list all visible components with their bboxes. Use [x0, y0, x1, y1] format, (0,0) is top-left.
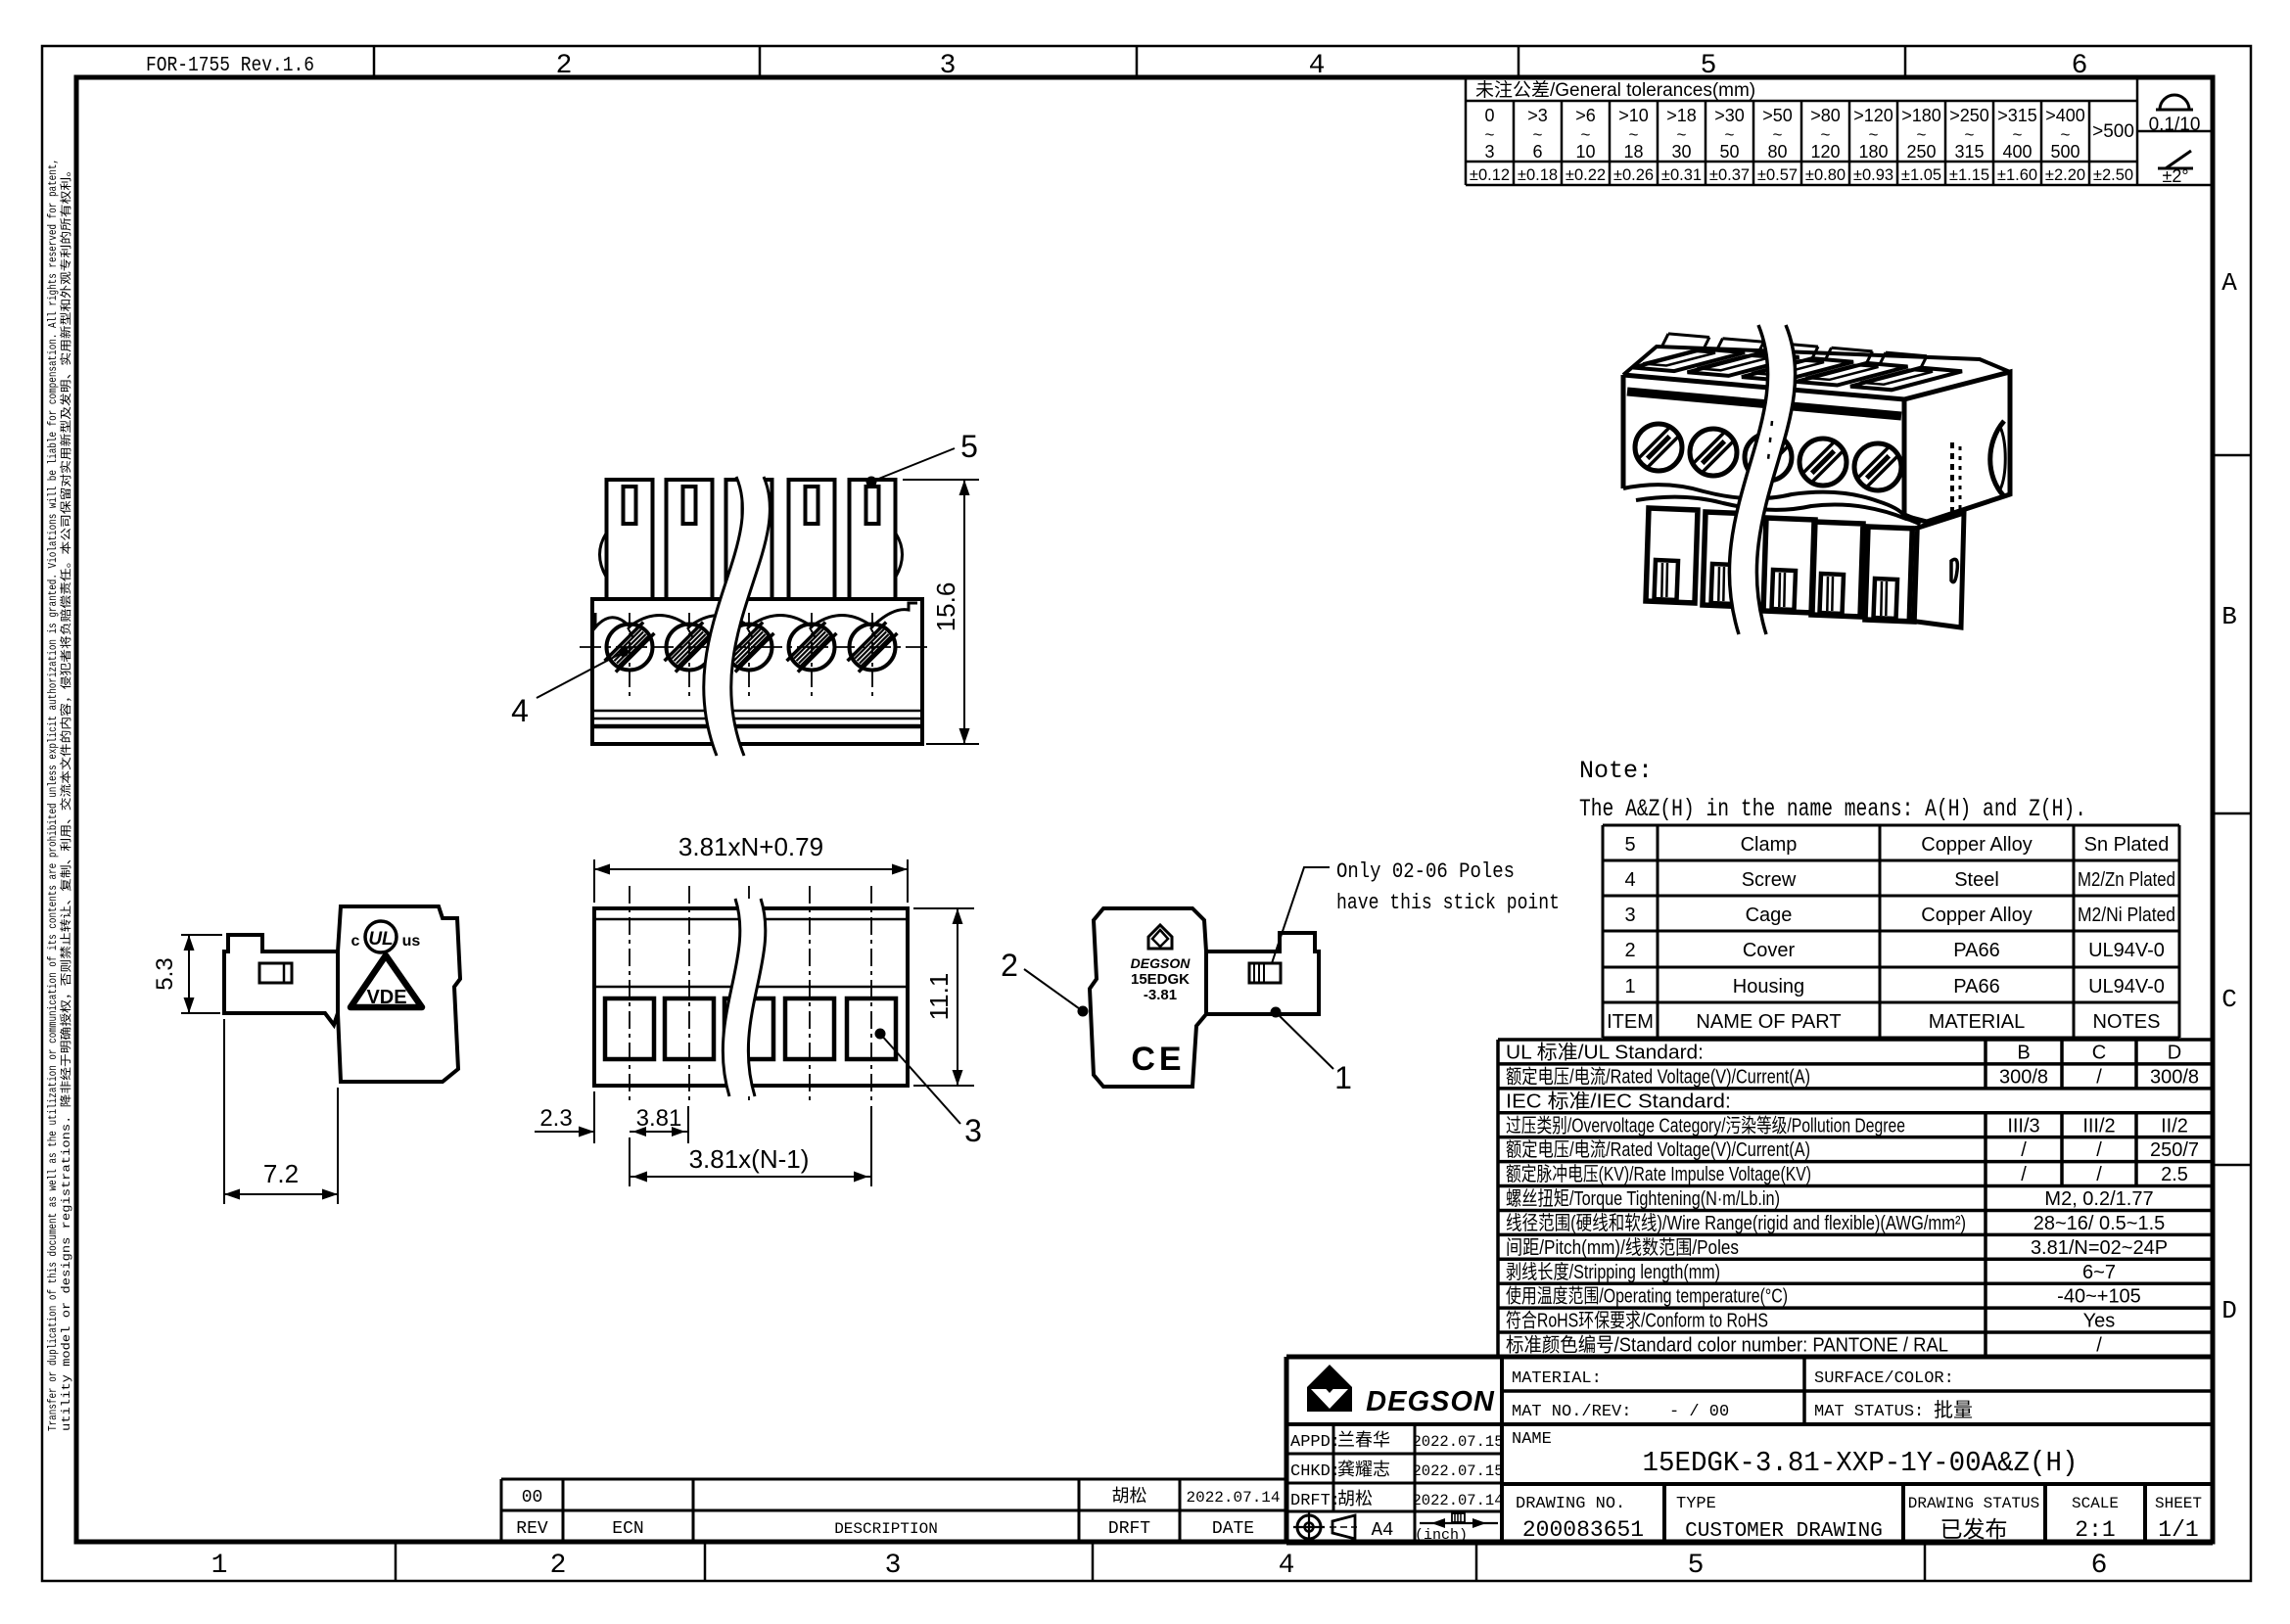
svg-text:>315: >315 [1997, 106, 2037, 125]
svg-text:3: 3 [1484, 142, 1494, 162]
svg-text:250/7: 250/7 [2150, 1139, 2199, 1161]
svg-text:UL94V-0: UL94V-0 [2088, 940, 2165, 961]
svg-text:>400: >400 [2045, 106, 2085, 125]
svg-text:11.1: 11.1 [924, 973, 954, 1021]
svg-text:NAME: NAME [1512, 1430, 1552, 1449]
svg-text:额定电压/电流/Rated Voltage(V)/Curre: 额定电压/电流/Rated Voltage(V)/Current(A) [1506, 1138, 1810, 1161]
svg-text:MATERIAL:: MATERIAL: [1512, 1369, 1602, 1388]
svg-text:2022.07.14: 2022.07.14 [1186, 1489, 1280, 1507]
svg-text:±0.80: ±0.80 [1805, 166, 1846, 184]
svg-text:MAT NO./REV:: MAT NO./REV: [1512, 1403, 1631, 1421]
svg-text:Cover: Cover [1743, 940, 1796, 961]
svg-text:250: 250 [1906, 142, 1936, 162]
svg-text:DRFT: DRFT [1108, 1519, 1150, 1539]
svg-text:>80: >80 [1810, 106, 1841, 125]
svg-text:SURFACE/COLOR:: SURFACE/COLOR: [1814, 1369, 1954, 1388]
svg-text:5.3: 5.3 [152, 957, 178, 990]
svg-text:M2, 0.2/1.77: M2, 0.2/1.77 [2044, 1188, 2153, 1210]
svg-text:批量: 批量 [1934, 1399, 1973, 1421]
svg-text:28~16/ 0.5~1.5: 28~16/ 0.5~1.5 [2033, 1213, 2166, 1234]
svg-text:/: / [2021, 1164, 2027, 1185]
svg-text:Housing: Housing [1733, 976, 1804, 998]
svg-text:±0.26: ±0.26 [1613, 166, 1654, 184]
svg-text:FOR-1755 Rev.1.6: FOR-1755 Rev.1.6 [146, 55, 314, 77]
svg-text:DEGSON: DEGSON [1131, 955, 1192, 971]
svg-text:±1.05: ±1.05 [1901, 166, 1941, 184]
svg-text:/: / [2096, 1066, 2102, 1088]
svg-text:Copper Alloy: Copper Alloy [1921, 905, 2032, 926]
svg-text:额定脉冲电压(KV)/Rate Impulse Voltag: 额定脉冲电压(KV)/Rate Impulse Voltage(KV) [1506, 1163, 1811, 1185]
svg-text:螺丝扭矩/Torque Tightening(N·m/Lb.: 螺丝扭矩/Torque Tightening(N·m/Lb.in) [1506, 1187, 1780, 1210]
svg-text:10: 10 [1575, 142, 1595, 162]
svg-text:B: B [2017, 1043, 2030, 1064]
svg-text:0: 0 [1484, 106, 1494, 125]
svg-text:2: 2 [550, 1551, 567, 1581]
svg-text:额定电压/电流/Rated Voltage(V)/Curre: 额定电压/电流/Rated Voltage(V)/Current(A) [1506, 1065, 1810, 1088]
svg-text:6~7: 6~7 [2082, 1262, 2116, 1283]
svg-text:2022.07.15: 2022.07.15 [1412, 1462, 1503, 1480]
svg-text:SCALE: SCALE [2072, 1495, 2119, 1512]
svg-text:50: 50 [1719, 142, 1739, 162]
svg-text:1: 1 [1334, 1060, 1352, 1095]
svg-text:2: 2 [1624, 940, 1635, 961]
svg-text:15EDGK: 15EDGK [1131, 971, 1190, 988]
svg-text:1: 1 [211, 1551, 228, 1581]
svg-text:M2/Ni Plated: M2/Ni Plated [2078, 905, 2175, 926]
svg-text:3: 3 [885, 1551, 902, 1581]
svg-text:D: D [2168, 1043, 2181, 1064]
svg-text:±2.50: ±2.50 [2093, 166, 2133, 184]
svg-text:±2°: ±2° [2162, 166, 2188, 186]
svg-text:Steel: Steel [1954, 869, 1999, 891]
svg-text:315: 315 [1954, 142, 1984, 162]
svg-text:CE: CE [1131, 1041, 1185, 1078]
svg-text:30: 30 [1671, 142, 1691, 162]
svg-text:B: B [2221, 602, 2237, 631]
svg-text:4: 4 [1279, 1551, 1295, 1581]
svg-text:±2.20: ±2.20 [2045, 166, 2085, 184]
svg-text:2.3: 2.3 [539, 1105, 572, 1132]
svg-text:/: / [2096, 1335, 2102, 1357]
svg-text:300/8: 300/8 [2150, 1066, 2199, 1088]
svg-text:DRAWING NO.: DRAWING NO. [1516, 1495, 1625, 1513]
svg-text:线径范围(硬线和软线)/Wire Range(rigid a: 线径范围(硬线和软线)/Wire Range(rigid and flexibl… [1506, 1212, 1966, 1234]
svg-text:80: 80 [1767, 142, 1787, 162]
svg-text:±1.60: ±1.60 [1997, 166, 2037, 184]
svg-text:3.81x(N-1): 3.81x(N-1) [689, 1144, 810, 1174]
svg-text:DRFT:: DRFT: [1290, 1492, 1340, 1510]
svg-text:3.81: 3.81 [636, 1105, 682, 1132]
svg-text:>6: >6 [1575, 106, 1596, 125]
svg-text:>120: >120 [1853, 106, 1893, 125]
svg-text:400: 400 [2002, 142, 2032, 162]
svg-text:±0.31: ±0.31 [1661, 166, 1702, 184]
svg-text:DEGSON: DEGSON [1366, 1386, 1495, 1417]
svg-text:>10: >10 [1618, 106, 1649, 125]
svg-text:6: 6 [2072, 51, 2088, 81]
svg-text:±0.57: ±0.57 [1757, 166, 1798, 184]
svg-text:±0.18: ±0.18 [1518, 166, 1558, 184]
svg-text:>18: >18 [1666, 106, 1697, 125]
svg-text:120: 120 [1810, 142, 1840, 162]
svg-text:II/2: II/2 [2161, 1115, 2188, 1137]
svg-text:6: 6 [1532, 142, 1542, 162]
svg-text:3: 3 [1624, 905, 1635, 926]
svg-text:(inch): (inch) [1415, 1527, 1468, 1544]
svg-text:UL94V-0: UL94V-0 [2088, 976, 2165, 998]
svg-text:5: 5 [960, 429, 978, 464]
svg-text:2: 2 [1001, 948, 1018, 983]
svg-text:CUSTOMER DRAWING: CUSTOMER DRAWING [1685, 1520, 1883, 1543]
svg-text:NAME OF PART: NAME OF PART [1696, 1011, 1841, 1033]
svg-text:Cage: Cage [1746, 905, 1793, 926]
svg-text:>500: >500 [2092, 121, 2134, 142]
svg-text:Screw: Screw [1742, 869, 1797, 891]
svg-text:ITEM: ITEM [1607, 1011, 1654, 1033]
svg-text:MATERIAL: MATERIAL [1929, 1011, 2026, 1033]
svg-text:胡松: 胡松 [1112, 1486, 1147, 1506]
svg-text:C: C [2221, 985, 2237, 1014]
svg-text:ECN: ECN [612, 1519, 643, 1539]
svg-text:NOTES: NOTES [2093, 1011, 2161, 1033]
svg-text:5: 5 [1688, 1551, 1705, 1581]
svg-text:A: A [2221, 268, 2237, 298]
svg-text:D: D [2221, 1296, 2237, 1325]
svg-text:5: 5 [1624, 834, 1635, 856]
svg-text:TYPE: TYPE [1676, 1495, 1716, 1513]
svg-text:MAT STATUS:: MAT STATUS: [1814, 1403, 1924, 1421]
svg-text:A4: A4 [1372, 1519, 1394, 1541]
svg-text:DATE: DATE [1212, 1519, 1254, 1539]
svg-text:标准颜色编号/Standard color number:: 标准颜色编号/Standard color number: PANTONE / … [1506, 1334, 1948, 1357]
svg-text:/: / [2096, 1139, 2102, 1161]
svg-text:300/8: 300/8 [1999, 1066, 2048, 1088]
svg-text:Note:: Note: [1579, 757, 1653, 785]
svg-text:DESCRIPTION: DESCRIPTION [834, 1520, 938, 1538]
svg-text:±0.22: ±0.22 [1566, 166, 1606, 184]
svg-text:>250: >250 [1949, 106, 1989, 125]
svg-text:c: c [351, 933, 360, 950]
svg-text:±0.12: ±0.12 [1470, 166, 1510, 184]
svg-text:5: 5 [1701, 51, 1717, 81]
svg-text:III/3: III/3 [2007, 1115, 2039, 1137]
svg-text:200083651: 200083651 [1522, 1517, 1644, 1543]
svg-text:7.2: 7.2 [263, 1159, 299, 1188]
svg-text:Transfer or duplication of thi: Transfer or duplication of this document… [47, 159, 60, 1431]
svg-text:-3.81: -3.81 [1144, 987, 1177, 1003]
svg-text:3.81/N=02~24P: 3.81/N=02~24P [2031, 1237, 2168, 1259]
svg-text:UL 标准/UL Standard:: UL 标准/UL Standard: [1506, 1042, 1704, 1064]
svg-text:DRAWING STATUS: DRAWING STATUS [1908, 1495, 2039, 1512]
svg-text:have this stick point: have this stick point [1336, 891, 1560, 915]
svg-text:±0.93: ±0.93 [1853, 166, 1893, 184]
svg-text:The A&Z(H) in the name means:: The A&Z(H) in the name means: A(H) and Z… [1579, 795, 2086, 823]
svg-text:间距/Pitch(mm)/线数范围/Poles: 间距/Pitch(mm)/线数范围/Poles [1506, 1236, 1739, 1259]
svg-text:us: us [402, 933, 421, 950]
svg-text:/: / [2096, 1164, 2102, 1185]
svg-text:SHEET: SHEET [2155, 1495, 2202, 1512]
svg-text:-40~+105: -40~+105 [2057, 1286, 2141, 1308]
svg-text:3: 3 [964, 1113, 982, 1148]
svg-text:0.1/10: 0.1/10 [2149, 115, 2201, 135]
svg-text:III/2: III/2 [2082, 1115, 2115, 1137]
svg-text:VDE: VDE [366, 987, 406, 1008]
svg-text:APPD:: APPD: [1290, 1433, 1340, 1452]
svg-text:REV: REV [516, 1519, 548, 1539]
svg-text:胡松: 胡松 [1337, 1489, 1373, 1508]
svg-text:3.81xN+0.79: 3.81xN+0.79 [678, 832, 823, 861]
svg-text:4: 4 [1309, 51, 1326, 81]
svg-text:1: 1 [1624, 976, 1635, 998]
svg-text:2:1: 2:1 [2075, 1517, 2115, 1543]
svg-text:utility model or designs regis: utility model or designs registrations. … [59, 163, 73, 1431]
svg-text:CHKD:: CHKD: [1290, 1462, 1340, 1481]
svg-text:IEC 标准/IEC Standard:: IEC 标准/IEC Standard: [1506, 1090, 1731, 1112]
svg-text:Only 02-06 Poles: Only 02-06 Poles [1336, 859, 1515, 884]
svg-text:1/1: 1/1 [2158, 1517, 2198, 1543]
svg-text:2022.07.14: 2022.07.14 [1412, 1492, 1503, 1509]
svg-text:C: C [2092, 1043, 2106, 1064]
svg-text:剥线长度/Stripping length(mm): 剥线长度/Stripping length(mm) [1506, 1261, 1720, 1283]
svg-text:Sn Plated: Sn Plated [2084, 834, 2170, 856]
svg-text:15.6: 15.6 [931, 582, 960, 632]
svg-text:Copper Alloy: Copper Alloy [1921, 834, 2032, 856]
svg-text:未注公差/General tolerances(mm): 未注公差/General tolerances(mm) [1475, 79, 1755, 101]
svg-text:2.5: 2.5 [2161, 1164, 2188, 1185]
svg-text:>180: >180 [1901, 106, 1941, 125]
svg-text:±0.37: ±0.37 [1709, 166, 1750, 184]
svg-text:M2/Zn Plated: M2/Zn Plated [2078, 869, 2175, 891]
svg-text:UL: UL [368, 929, 393, 950]
svg-text:>30: >30 [1714, 106, 1745, 125]
svg-text:18: 18 [1623, 142, 1643, 162]
svg-text:PA66: PA66 [1953, 940, 1999, 961]
svg-text:龚耀志: 龚耀志 [1337, 1460, 1390, 1479]
svg-text:已发布: 已发布 [1940, 1516, 2008, 1542]
svg-text:4: 4 [511, 693, 529, 728]
svg-text:3: 3 [940, 51, 957, 81]
svg-text:>3: >3 [1527, 106, 1548, 125]
svg-text:过压类别/Overvoltage Category/污染等级: 过压类别/Overvoltage Category/污染等级/Pollution… [1506, 1114, 1905, 1137]
svg-text:Clamp: Clamp [1741, 834, 1798, 856]
svg-text:2022.07.15: 2022.07.15 [1412, 1433, 1503, 1451]
svg-text:500: 500 [2050, 142, 2080, 162]
svg-text:/: / [2021, 1139, 2027, 1161]
svg-text:2: 2 [556, 51, 573, 81]
svg-text:- / 00: - / 00 [1669, 1403, 1729, 1421]
svg-text:15EDGK-3.81-XXP-1Y-00A&Z(H): 15EDGK-3.81-XXP-1Y-00A&Z(H) [1643, 1447, 2079, 1479]
svg-text:4: 4 [1624, 869, 1635, 891]
svg-text:180: 180 [1858, 142, 1888, 162]
svg-text:00: 00 [522, 1488, 543, 1508]
svg-text:兰春华: 兰春华 [1337, 1430, 1390, 1450]
svg-text:使用温度范围/Operating temperature(°: 使用温度范围/Operating temperature(°C) [1506, 1285, 1788, 1308]
svg-text:6: 6 [2091, 1551, 2108, 1581]
svg-text:>50: >50 [1762, 106, 1793, 125]
svg-text:±1.15: ±1.15 [1949, 166, 1989, 184]
svg-text:符合RoHS环保要求/Conform to RoHS: 符合RoHS环保要求/Conform to RoHS [1506, 1310, 1768, 1332]
svg-text:PA66: PA66 [1953, 976, 1999, 998]
svg-text:Yes: Yes [2083, 1311, 2116, 1332]
